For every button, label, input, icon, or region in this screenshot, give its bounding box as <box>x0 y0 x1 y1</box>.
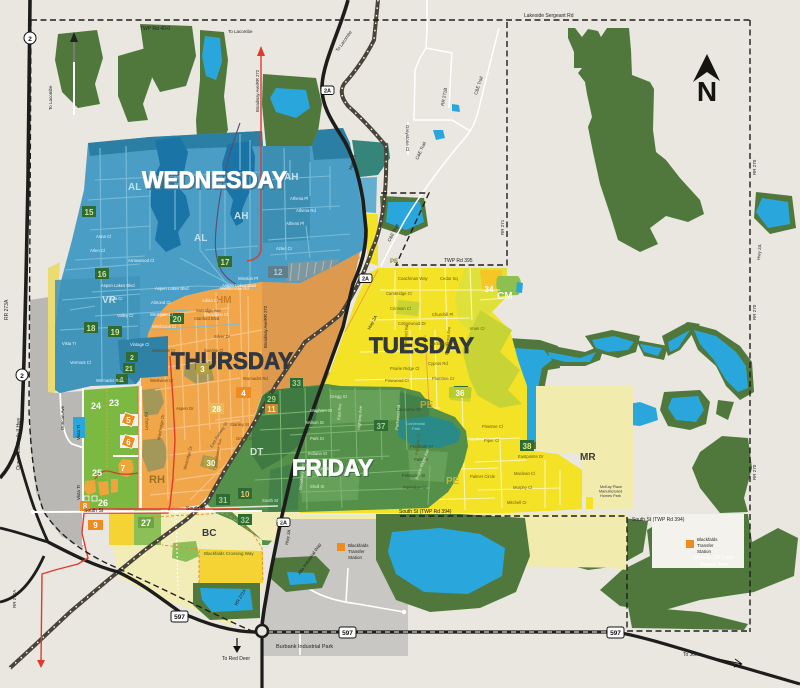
svg-text:RR 273A: RR 273A <box>4 299 10 320</box>
svg-text:Pinewood Cl: Pinewood Cl <box>385 378 409 383</box>
svg-text:Valley Cr: Valley Cr <box>117 313 134 318</box>
svg-text:2A: 2A <box>362 277 369 283</box>
svg-text:27: 27 <box>141 518 151 528</box>
svg-text:Aspen Lakes Blvd: Aspen Lakes Blvd <box>101 283 135 288</box>
svg-text:Churchill Pl: Churchill Pl <box>432 312 453 317</box>
svg-text:Coachman Way: Coachman Way <box>398 276 429 281</box>
svg-text:Vintage Cl: Vintage Cl <box>130 342 149 347</box>
svg-text:Ava Cr: Ava Cr <box>110 296 123 301</box>
svg-text:2A: 2A <box>324 89 331 95</box>
svg-text:37: 37 <box>377 422 386 431</box>
svg-text:Sunridge Ave: Sunridge Ave <box>196 308 222 313</box>
svg-text:AL: AL <box>194 233 207 244</box>
svg-text:21: 21 <box>125 366 133 373</box>
svg-text:Blackfalds Crossing Way: Blackfalds Crossing Way <box>204 551 254 556</box>
svg-text:Arlen Cl: Arlen Cl <box>90 248 105 253</box>
svg-text:24: 24 <box>91 401 101 411</box>
svg-text:Mitchell Cr: Mitchell Cr <box>507 500 527 505</box>
svg-text:WEDNESDAY: WEDNESDAY <box>142 167 287 194</box>
svg-text:RR 270: RR 270 <box>752 159 757 175</box>
svg-text:597: 597 <box>342 630 353 637</box>
svg-text:Crimson Cl: Crimson Cl <box>390 306 411 311</box>
svg-text:Almond Cr: Almond Cr <box>151 300 171 305</box>
svg-text:11: 11 <box>267 405 276 414</box>
svg-text:N: N <box>697 76 717 107</box>
svg-text:Silver Dr: Silver Dr <box>214 334 231 339</box>
svg-text:Stanley St: Stanley St <box>230 422 250 427</box>
svg-text:12: 12 <box>274 268 283 277</box>
svg-text:597: 597 <box>174 614 185 621</box>
svg-text:Transfer: Transfer <box>348 549 365 554</box>
svg-text:Vista Tr: Vista Tr <box>76 484 81 500</box>
svg-text:2: 2 <box>20 373 24 380</box>
svg-text:To Lacombe: To Lacombe <box>48 85 53 110</box>
svg-text:Stanford Blvd: Stanford Blvd <box>194 316 220 321</box>
svg-text:Vermont Cl: Vermont Cl <box>70 360 91 365</box>
svg-text:Westview Cr: Westview Cr <box>152 348 176 353</box>
svg-text:RR 270: RR 270 <box>752 464 757 480</box>
svg-text:36: 36 <box>456 389 465 398</box>
svg-text:Eastpointe Dr: Eastpointe Dr <box>518 454 544 459</box>
svg-text:DT: DT <box>250 447 263 458</box>
svg-text:17: 17 <box>221 258 230 267</box>
svg-text:Broadway Ave/RR 272: Broadway Ave/RR 272 <box>255 69 260 112</box>
svg-text:Athena Rd: Athena Rd <box>296 208 316 213</box>
svg-text:Gregg St: Gregg St <box>330 394 348 399</box>
svg-text:9: 9 <box>93 521 98 530</box>
svg-text:CM: CM <box>497 291 513 302</box>
svg-text:Lakeside Sergeant Rd: Lakeside Sergeant Rd <box>524 13 574 19</box>
svg-text:28: 28 <box>212 405 221 414</box>
svg-text:16: 16 <box>98 270 107 279</box>
svg-text:PE: PE <box>420 400 434 411</box>
svg-text:Station: Station <box>348 555 363 560</box>
svg-text:Womacks Rd: Womacks Rd <box>243 376 268 381</box>
svg-text:Manufactured: Manufactured <box>599 490 622 494</box>
svg-text:RR 270: RR 270 <box>752 304 757 320</box>
svg-text:Westview Cr: Westview Cr <box>150 378 174 383</box>
svg-text:38: 38 <box>523 442 532 451</box>
svg-text:Pondside Cr: Pondside Cr <box>410 444 434 449</box>
svg-text:Cyprus Rd: Cyprus Rd <box>428 361 448 366</box>
svg-text:Piper Cl: Piper Cl <box>484 438 499 443</box>
svg-text:South St: South St <box>84 508 104 514</box>
svg-text:Vista Tr: Vista Tr <box>76 424 81 440</box>
svg-text:Park: Park <box>412 426 420 431</box>
svg-text:Arrowwood Cl: Arrowwood Cl <box>128 258 154 263</box>
svg-text:Womacks Rd: Womacks Rd <box>96 378 121 383</box>
svg-text:Aspen Dr: Aspen Dr <box>176 406 194 411</box>
svg-text:23: 23 <box>109 398 119 408</box>
svg-text:Broadway Ave/RR 272: Broadway Ave/RR 272 <box>263 305 268 348</box>
svg-text:TWP Rd 40-0: TWP Rd 40-0 <box>140 26 170 32</box>
svg-text:Winston Pl: Winston Pl <box>238 276 258 281</box>
svg-text:Athena Pl: Athena Pl <box>290 196 308 201</box>
svg-text:South St (TWP Rd 394): South St (TWP Rd 394) <box>399 509 452 515</box>
svg-text:Trout St: Trout St <box>268 518 284 523</box>
svg-text:Maclean Cl: Maclean Cl <box>514 471 535 476</box>
svg-text:31: 31 <box>219 496 228 505</box>
svg-text:32: 32 <box>241 516 250 525</box>
svg-text:Burbank Industrial Park: Burbank Industrial Park <box>276 644 333 650</box>
svg-text:Blackfalds: Blackfalds <box>697 537 718 542</box>
svg-text:RR 271: RR 271 <box>500 219 505 235</box>
svg-text:Parkridge Cr: Parkridge Cr <box>403 485 427 490</box>
svg-text:PE: PE <box>446 476 460 487</box>
svg-text:RR 272A: RR 272A <box>12 590 17 608</box>
svg-text:Natural Area: Natural Area <box>700 562 728 568</box>
svg-text:South St: South St <box>262 498 279 503</box>
svg-text:Gregg St: Gregg St <box>236 436 254 441</box>
svg-text:Queen Elizabeth II Hwy: Queen Elizabeth II Hwy <box>16 417 22 470</box>
svg-text:To Joffre: To Joffre <box>683 652 702 658</box>
svg-text:2: 2 <box>130 355 134 362</box>
svg-text:MR: MR <box>580 452 596 463</box>
svg-text:Cedar Sq: Cedar Sq <box>440 276 458 281</box>
svg-text:597: 597 <box>610 630 621 637</box>
svg-text:Aztec Cr: Aztec Cr <box>276 246 293 251</box>
svg-text:HM: HM <box>216 295 232 306</box>
svg-text:RH: RH <box>149 474 165 486</box>
svg-text:6: 6 <box>126 438 131 447</box>
svg-text:34: 34 <box>485 285 494 294</box>
svg-text:5: 5 <box>126 416 131 425</box>
svg-text:TWP Rd 395: TWP Rd 395 <box>444 258 473 264</box>
svg-text:3: 3 <box>200 365 205 374</box>
svg-text:Pinetree Cl: Pinetree Cl <box>482 424 503 429</box>
svg-text:McKay Place: McKay Place <box>600 485 622 489</box>
svg-text:29: 29 <box>267 395 276 404</box>
svg-text:Wilson St: Wilson St <box>306 420 325 425</box>
svg-text:PE: PE <box>390 259 398 265</box>
svg-text:15: 15 <box>85 208 94 217</box>
svg-text:25: 25 <box>92 468 102 478</box>
svg-text:10: 10 <box>241 490 250 499</box>
svg-text:Plumtree Cr: Plumtree Cr <box>432 376 455 381</box>
svg-text:Adina Cl: Adina Cl <box>202 298 218 303</box>
svg-text:Winks St: Winks St <box>314 466 331 471</box>
svg-text:Mary & Cliff Soper: Mary & Cliff Soper <box>694 555 735 561</box>
svg-text:To Lacombe: To Lacombe <box>228 29 253 34</box>
svg-text:Whitbrook Cl: Whitbrook Cl <box>152 324 176 329</box>
svg-text:Greystone Cl: Greystone Cl <box>405 125 410 151</box>
svg-text:Homes Park: Homes Park <box>600 494 621 498</box>
svg-text:Aspen Lakes Blvd: Aspen Lakes Blvd <box>155 286 189 291</box>
svg-text:Cambridge Cl: Cambridge Cl <box>386 291 412 296</box>
svg-text:Cottonwood Dr: Cottonwood Dr <box>398 321 427 326</box>
svg-text:Murphy Cl: Murphy Cl <box>513 485 532 490</box>
svg-text:BC: BC <box>202 528 216 539</box>
svg-text:18: 18 <box>87 324 96 333</box>
svg-text:7: 7 <box>121 464 126 473</box>
svg-text:Indiana St: Indiana St <box>308 451 328 456</box>
svg-text:20: 20 <box>173 315 182 324</box>
svg-text:TUESDAY: TUESDAY <box>369 333 474 358</box>
svg-text:THURSDAY: THURSDAY <box>171 348 293 375</box>
svg-text:AH: AH <box>284 172 298 183</box>
svg-text:To Red Deer: To Red Deer <box>222 656 250 662</box>
svg-text:Weelbrooke Rd: Weelbrooke Rd <box>220 286 249 291</box>
svg-text:Palmer Circle: Palmer Circle <box>470 474 496 479</box>
svg-text:Athens Pl: Athens Pl <box>286 221 304 226</box>
svg-text:South St (TWP Rd 394): South St (TWP Rd 394) <box>632 517 685 523</box>
svg-text:2: 2 <box>28 36 32 43</box>
svg-text:Prairie Ridge Cl: Prairie Ridge Cl <box>390 366 419 371</box>
svg-text:4: 4 <box>241 389 246 398</box>
svg-text:33: 33 <box>292 379 301 388</box>
svg-text:Shull St: Shull St <box>310 484 325 489</box>
svg-text:19: 19 <box>111 328 120 337</box>
svg-text:AH: AH <box>234 211 248 222</box>
svg-text:Station: Station <box>697 549 712 554</box>
svg-text:Anna Cl: Anna Cl <box>96 234 111 239</box>
svg-text:South St: South St <box>186 506 206 512</box>
svg-text:26: 26 <box>98 498 108 508</box>
svg-text:Transfer: Transfer <box>697 543 714 548</box>
svg-text:Leung Rd: Leung Rd <box>144 411 149 430</box>
svg-text:Waghorn St: Waghorn St <box>310 408 333 413</box>
svg-text:Westgate Cr: Westgate Cr <box>150 312 174 317</box>
svg-text:Park St: Park St <box>310 436 325 441</box>
svg-text:Sunrise Cl: Sunrise Cl <box>204 348 223 353</box>
svg-text:Duncan Ave: Duncan Ave <box>60 405 65 430</box>
svg-text:Vista Tr: Vista Tr <box>62 341 77 346</box>
svg-text:Iman Cr: Iman Cr <box>470 326 485 331</box>
svg-text:AL: AL <box>128 182 141 193</box>
svg-text:Blackfalds: Blackfalds <box>348 543 369 548</box>
